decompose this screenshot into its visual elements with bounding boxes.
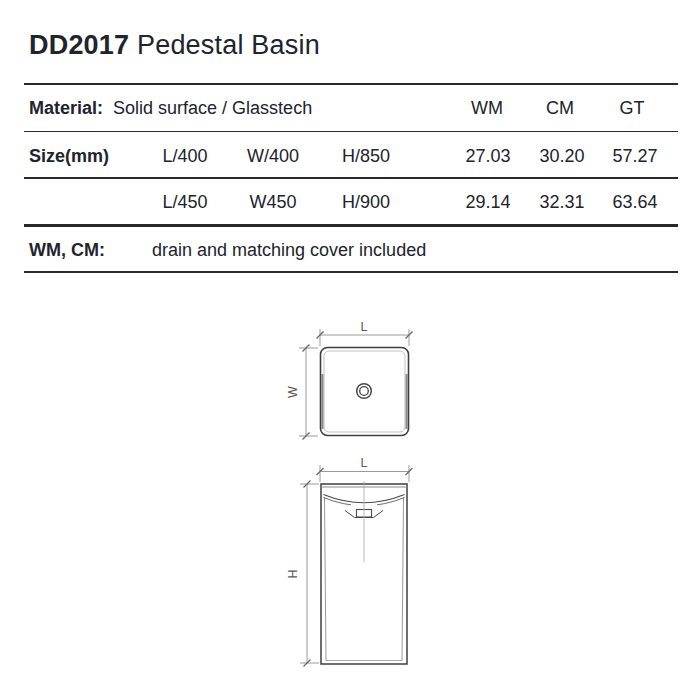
table-rule-top — [24, 83, 678, 85]
column-header-gt: GT — [620, 96, 645, 120]
note-label: WM, CM: — [29, 238, 105, 262]
size2-width: W450 — [249, 190, 296, 214]
page-title: DD2017 Pedestal Basin — [29, 28, 320, 62]
size1-height: H/850 — [342, 144, 390, 168]
model-code: DD2017 — [29, 30, 129, 60]
note-text: drain and matching cover included — [152, 238, 426, 262]
size2-height: H/900 — [342, 190, 390, 214]
spec-sheet: DD2017 Pedestal Basin Material: Solid su… — [0, 0, 700, 700]
size1-length: L/400 — [162, 144, 207, 168]
size2-price-gt: 63.64 — [612, 190, 657, 214]
front-view-drawing: L H — [286, 456, 413, 667]
top-view-width-label: W — [286, 386, 300, 398]
drain-inner-circle — [360, 387, 369, 396]
product-name: Pedestal Basin — [137, 30, 320, 60]
top-view-drawing: L W — [286, 320, 413, 440]
size1-width: W/400 — [247, 144, 299, 168]
front-view-height-label: H — [286, 569, 300, 578]
technical-drawings: L W L — [0, 295, 700, 700]
table-rule-4 — [24, 224, 678, 227]
column-header-wm: WM — [471, 96, 503, 120]
size2-price-wm: 29.14 — [465, 190, 510, 214]
front-view-length-label: L — [361, 456, 368, 470]
material-row-label: Material: Solid surface / Glasstech — [29, 96, 312, 120]
size1-price-gt: 57.27 — [612, 144, 657, 168]
material-value: Solid surface / Glasstech — [113, 98, 312, 118]
size2-length: L/450 — [162, 190, 207, 214]
size1-price-cm: 30.20 — [539, 144, 584, 168]
size-label: Size(mm) — [29, 144, 109, 168]
table-rule-bottom — [24, 271, 678, 273]
table-rule-3 — [24, 177, 678, 179]
material-label: Material: — [29, 98, 103, 118]
table-rule-2 — [24, 131, 678, 132]
top-view-length-label: L — [361, 320, 368, 334]
size1-price-wm: 27.03 — [465, 144, 510, 168]
column-header-cm: CM — [546, 96, 574, 120]
size2-price-cm: 32.31 — [539, 190, 584, 214]
